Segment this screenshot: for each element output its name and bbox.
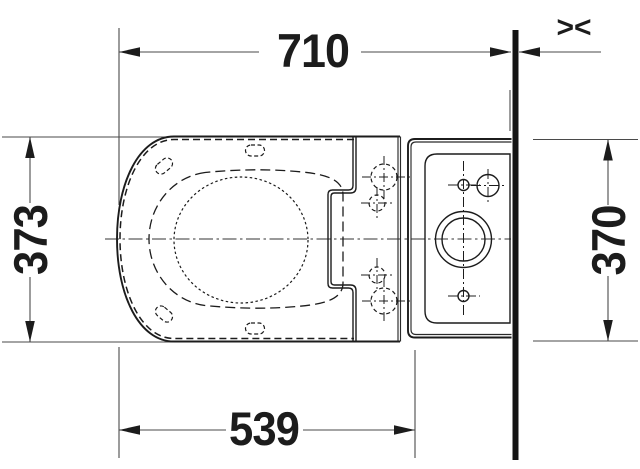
dimension-label-370: 370 [582,206,635,276]
dimension-370: 370 [533,140,638,342]
seat-bumper [153,156,175,177]
seat-bumper [153,304,175,325]
seat-bumper [246,145,265,156]
dimension-label-710: 710 [277,24,349,77]
seat-bumper [246,323,265,334]
arrowhead-right [394,425,415,435]
dimension-710: 710 [119,24,601,205]
dimension-label-539: 539 [229,402,299,455]
dimension-539: 539 [119,347,415,458]
cistern [408,139,512,338]
technical-drawing-canvas: >< 710 373 370 [0,0,640,469]
arrowhead-down [25,321,35,342]
toilet-top-view [105,137,512,342]
arrowhead-left [119,47,140,57]
cistern-outline-inner [411,142,512,335]
wall-line [513,30,519,460]
cistern-outline [408,139,512,338]
arrowhead-right [490,47,511,57]
arrowhead-up [603,140,613,161]
wall-symbol: >< [556,11,591,44]
bowl-rim-dotted [174,177,308,303]
arrowhead-left [119,425,140,435]
arrowhead-left [519,47,540,57]
dimension-label-373: 373 [4,205,57,275]
arrowhead-down [603,320,613,341]
arrowhead-up [25,137,35,158]
wall: >< [513,11,592,460]
